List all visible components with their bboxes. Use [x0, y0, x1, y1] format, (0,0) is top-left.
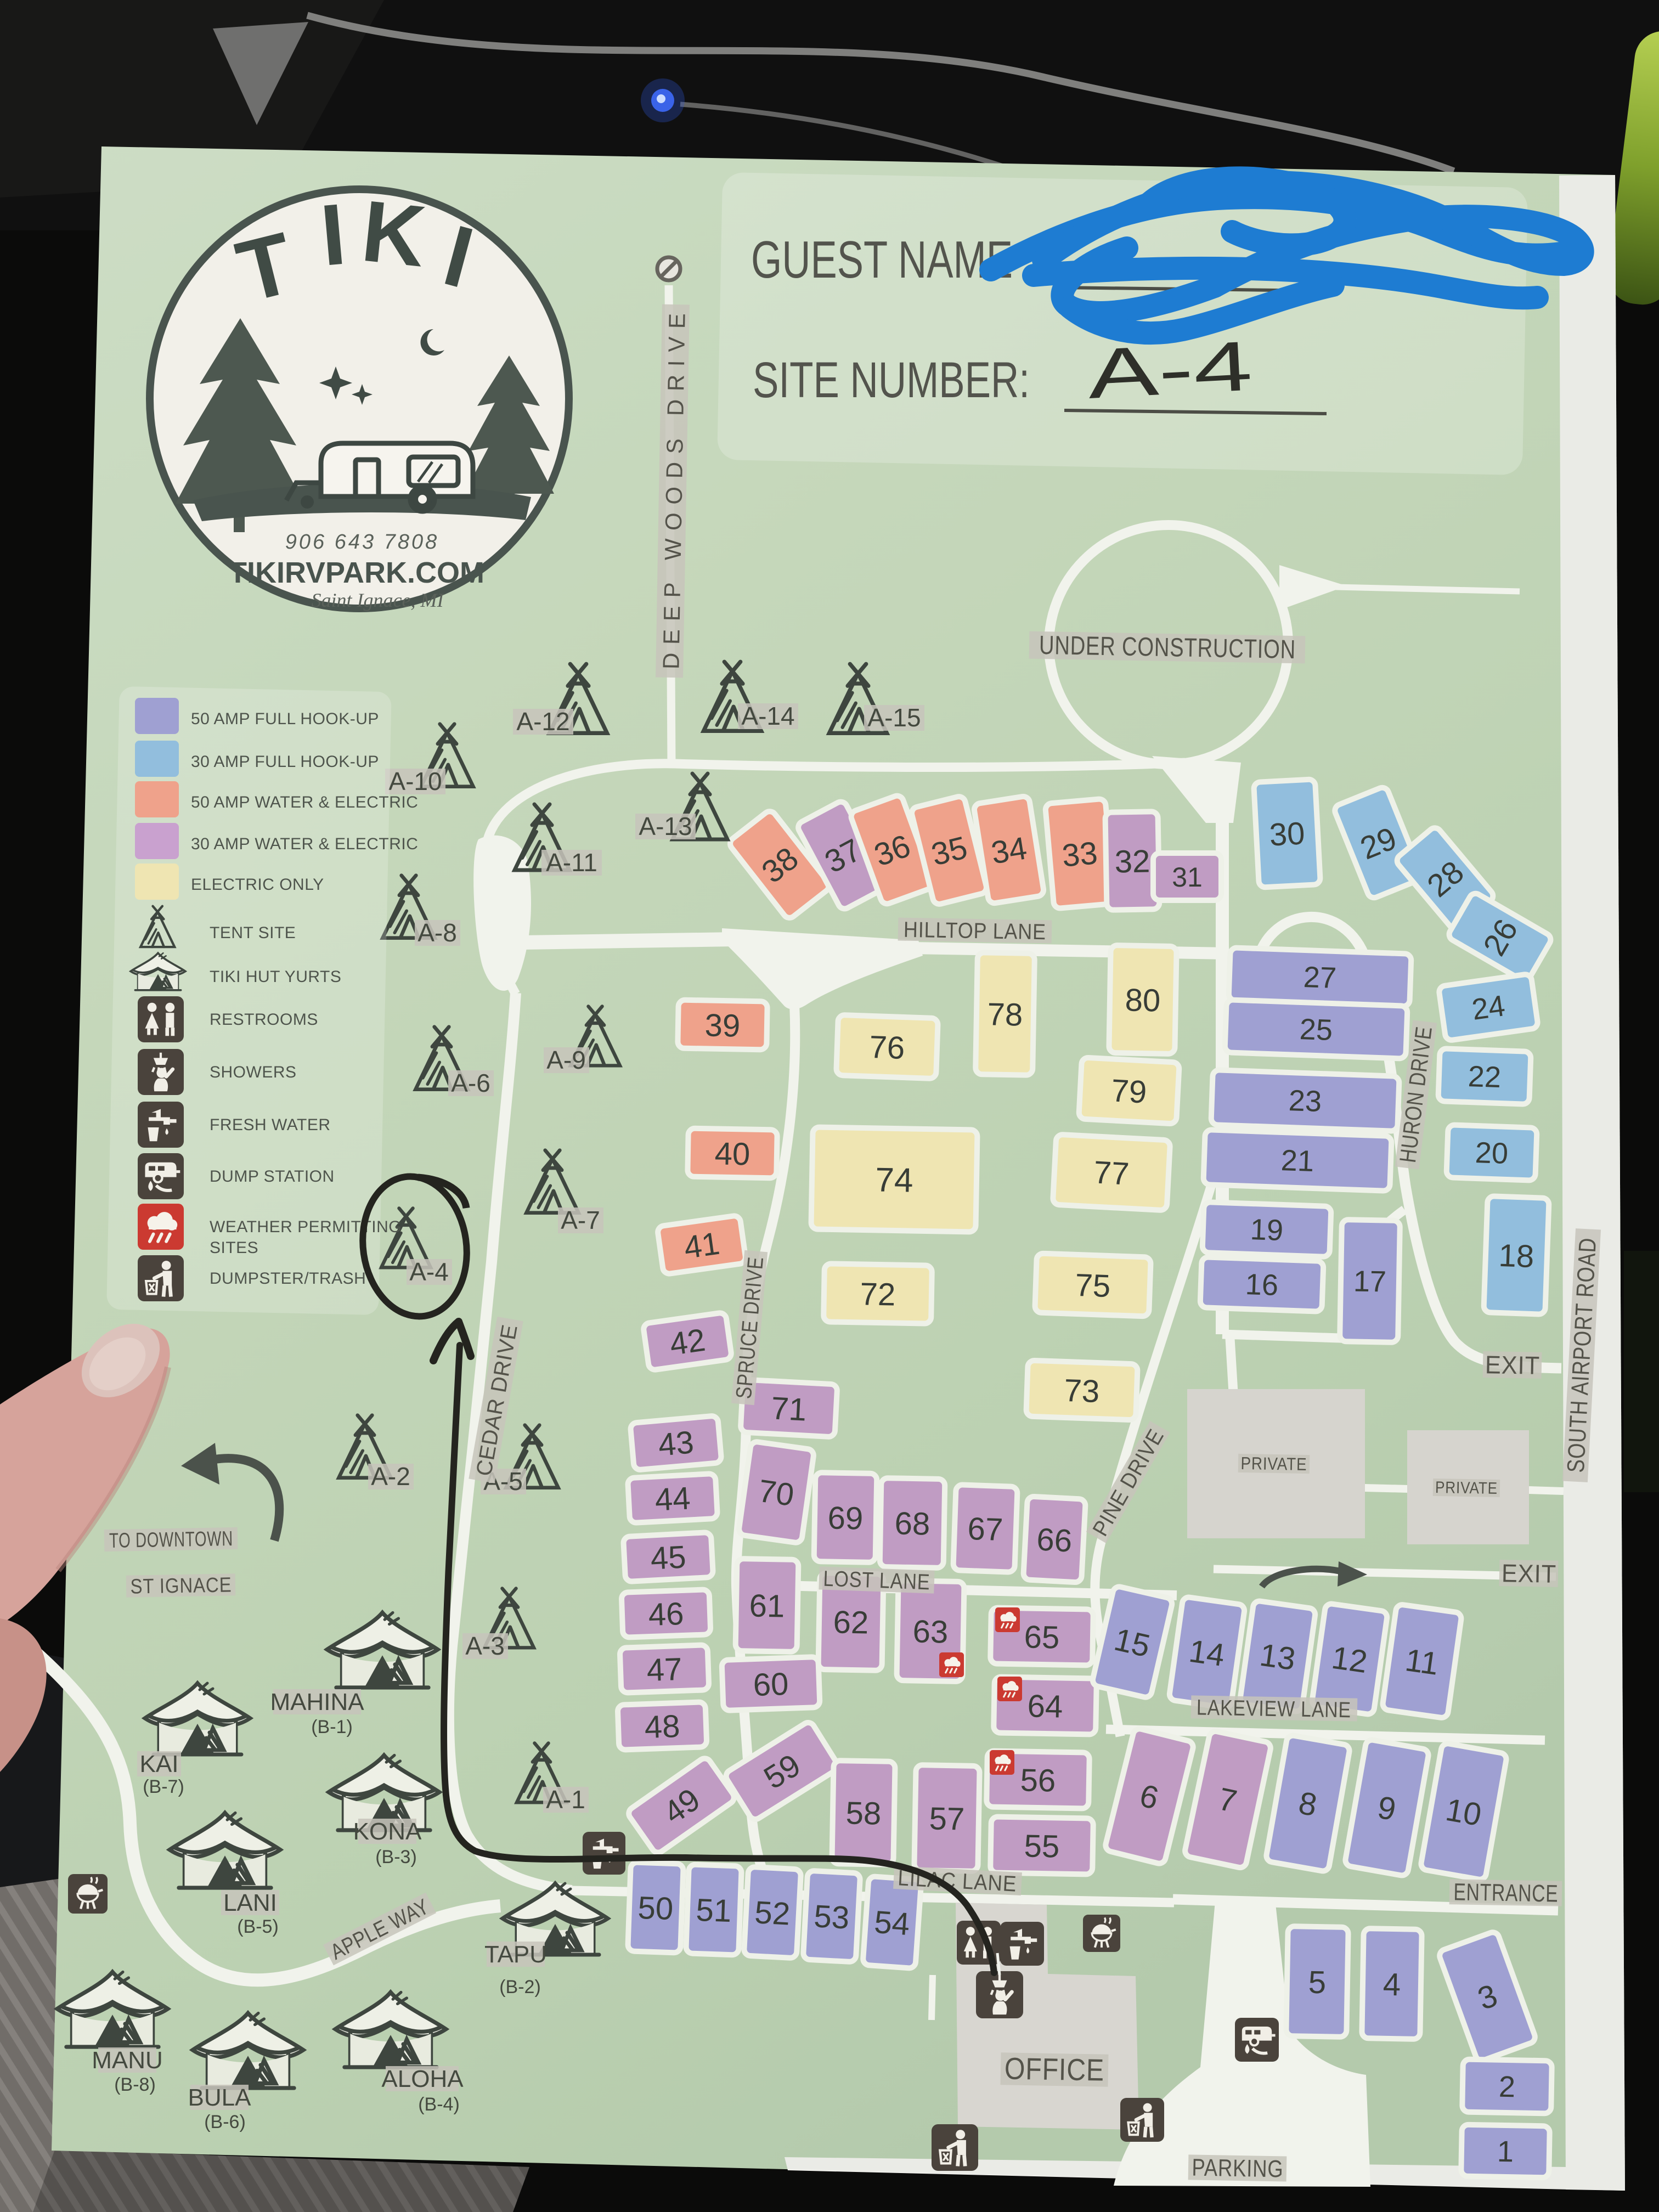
svg-text:PRIVATE: PRIVATE [1240, 1453, 1307, 1474]
svg-text:A-7: A-7 [561, 1206, 600, 1234]
svg-text:SHOWERS: SHOWERS [210, 1063, 297, 1081]
svg-text:50 AMP FULL HOOK-UP: 50 AMP FULL HOOK-UP [191, 710, 379, 728]
svg-text:53: 53 [813, 1898, 850, 1936]
svg-text:73: 73 [1064, 1373, 1101, 1409]
svg-text:71: 71 [770, 1390, 808, 1427]
svg-text:43: 43 [657, 1424, 695, 1463]
svg-text:75: 75 [1075, 1267, 1111, 1304]
svg-text:20: 20 [1475, 1136, 1509, 1170]
svg-text:DUMP STATION: DUMP STATION [210, 1167, 335, 1186]
svg-text:16: 16 [1245, 1268, 1279, 1302]
svg-text:33: 33 [1060, 835, 1099, 873]
svg-text:MAHINA: MAHINA [270, 1689, 364, 1716]
svg-text:RESTROOMS: RESTROOMS [210, 1011, 318, 1029]
svg-text:57: 57 [929, 1801, 965, 1837]
svg-text:42: 42 [668, 1322, 708, 1362]
svg-text:A-6: A-6 [451, 1069, 490, 1097]
svg-text:LAKEVIEW LANE: LAKEVIEW LANE [1197, 1696, 1352, 1723]
svg-text:63: 63 [912, 1613, 949, 1650]
svg-text:48: 48 [644, 1708, 681, 1745]
svg-text:10: 10 [1443, 1792, 1484, 1833]
svg-text:18: 18 [1498, 1238, 1535, 1274]
svg-text:56: 56 [1020, 1762, 1056, 1798]
svg-text:UNDER CONSTRUCTION: UNDER CONSTRUCTION [1039, 631, 1296, 664]
svg-text:58: 58 [845, 1795, 882, 1831]
svg-text:KAI: KAI [140, 1751, 179, 1778]
svg-text:34: 34 [989, 830, 1029, 871]
svg-text:13: 13 [1257, 1637, 1297, 1677]
svg-text:EXIT: EXIT [1502, 1559, 1557, 1588]
svg-text:77: 77 [1093, 1154, 1130, 1192]
svg-text:(B-6): (B-6) [204, 2112, 246, 2132]
svg-text:64: 64 [1027, 1688, 1063, 1724]
svg-text:DUMPSTER/TRASH: DUMPSTER/TRASH [210, 1269, 366, 1288]
svg-text:30 AMP FULL HOOK-UP: 30 AMP FULL HOOK-UP [191, 753, 379, 771]
svg-text:A-1: A-1 [546, 1785, 585, 1814]
svg-text:62: 62 [833, 1604, 869, 1640]
svg-text:TENT SITE: TENT SITE [210, 924, 296, 942]
svg-text:FRESH WATER: FRESH WATER [210, 1116, 331, 1134]
svg-text:32: 32 [1114, 843, 1150, 879]
svg-text:A-2: A-2 [371, 1462, 410, 1491]
svg-text:A-15: A-15 [867, 703, 921, 732]
svg-text:1: 1 [1497, 2135, 1514, 2169]
svg-text:68: 68 [894, 1505, 930, 1542]
svg-text:OFFICE: OFFICE [1004, 2051, 1104, 2087]
svg-text:A-11: A-11 [546, 848, 597, 877]
svg-text:(B-7): (B-7) [143, 1776, 184, 1797]
svg-text:4: 4 [1383, 1967, 1401, 2003]
svg-text:61: 61 [749, 1588, 785, 1624]
svg-text:TAPU: TAPU [484, 1941, 547, 1968]
svg-text:46: 46 [648, 1596, 685, 1633]
svg-text:14: 14 [1187, 1633, 1227, 1673]
svg-text:17: 17 [1353, 1265, 1386, 1298]
svg-text:ALOHA: ALOHA [381, 2066, 464, 2092]
svg-text:21: 21 [1280, 1144, 1314, 1178]
svg-text:(B-1): (B-1) [311, 1717, 353, 1737]
svg-text:19: 19 [1250, 1213, 1284, 1247]
svg-text:WEATHER PERMITTING: WEATHER PERMITTING [210, 1218, 402, 1236]
svg-text:12: 12 [1329, 1640, 1369, 1680]
svg-text:(B-3): (B-3) [375, 1847, 417, 1867]
svg-text:66: 66 [1036, 1521, 1073, 1559]
svg-text:A-3: A-3 [465, 1632, 505, 1660]
svg-text:74: 74 [875, 1161, 913, 1199]
svg-text:A-8: A-8 [417, 918, 457, 947]
svg-text:A-9: A-9 [546, 1046, 586, 1074]
svg-text:Saint Ignace, MI: Saint Ignace, MI [312, 589, 445, 611]
svg-text:70: 70 [756, 1473, 796, 1513]
svg-text:HILLTOP LANE: HILLTOP LANE [904, 918, 1047, 945]
svg-text:78: 78 [987, 996, 1023, 1032]
svg-text:39: 39 [704, 1007, 741, 1043]
svg-text:MANU: MANU [92, 2047, 163, 2074]
svg-text:54: 54 [873, 1904, 911, 1942]
svg-text:41: 41 [682, 1226, 722, 1266]
svg-text:(B-2): (B-2) [499, 1977, 541, 1997]
svg-text:GUEST NAME: GUEST NAME [751, 230, 1013, 289]
svg-text:A-4: A-4 [409, 1257, 449, 1286]
svg-text:24: 24 [1470, 989, 1507, 1026]
svg-text:TIKIRVPARK.COM: TIKIRVPARK.COM [229, 556, 484, 589]
svg-text:LOST LANE: LOST LANE [823, 1567, 930, 1595]
svg-text:SITE NUMBER:: SITE NUMBER: [753, 352, 1030, 408]
svg-text:47: 47 [646, 1651, 683, 1688]
svg-text:60: 60 [753, 1666, 789, 1703]
svg-text:11: 11 [1403, 1642, 1441, 1682]
svg-text:K: K [358, 183, 430, 285]
svg-text:LANI: LANI [223, 1889, 277, 1916]
svg-text:(B-8): (B-8) [114, 2074, 156, 2095]
svg-text:72: 72 [860, 1276, 896, 1312]
svg-text:A-12: A-12 [516, 707, 569, 736]
svg-text:23: 23 [1288, 1084, 1322, 1118]
svg-text:SITES: SITES [210, 1239, 258, 1257]
svg-text:EXIT: EXIT [1485, 1350, 1541, 1380]
svg-text:PARKING: PARKING [1192, 2154, 1284, 2183]
svg-text:76: 76 [869, 1029, 906, 1066]
svg-text:69: 69 [827, 1500, 864, 1536]
svg-text:ENTRANCE: ENTRANCE [1453, 1878, 1559, 1907]
svg-text:PRIVATE: PRIVATE [1435, 1479, 1498, 1498]
svg-text:A-13: A-13 [639, 812, 692, 840]
svg-text:(B-4): (B-4) [418, 2094, 460, 2115]
svg-text:67: 67 [967, 1511, 1004, 1548]
svg-text:31: 31 [1172, 862, 1203, 893]
svg-text:55: 55 [1024, 1828, 1060, 1864]
svg-text:2: 2 [1498, 2070, 1515, 2104]
svg-text:TO DOWNTOWN: TO DOWNTOWN [109, 1527, 234, 1553]
svg-text:50: 50 [637, 1890, 674, 1927]
svg-text:51: 51 [696, 1892, 732, 1929]
svg-text:50 AMP WATER & ELECTRIC: 50 AMP WATER & ELECTRIC [191, 793, 418, 811]
svg-text:45: 45 [650, 1539, 687, 1576]
svg-text:(B-5): (B-5) [237, 1916, 279, 1937]
svg-text:30: 30 [1268, 815, 1306, 853]
svg-text:27: 27 [1303, 961, 1337, 995]
svg-text:79: 79 [1110, 1073, 1148, 1110]
svg-text:65: 65 [1024, 1619, 1060, 1655]
svg-text:40: 40 [714, 1136, 751, 1172]
svg-text:906 643 7808: 906 643 7808 [285, 531, 439, 554]
svg-text:30 AMP WATER & ELECTRIC: 30 AMP WATER & ELECTRIC [191, 835, 418, 853]
svg-text:A-14: A-14 [741, 702, 794, 730]
svg-text:52: 52 [754, 1894, 791, 1932]
svg-text:KONA: KONA [353, 1818, 422, 1845]
svg-text:BULA: BULA [188, 2084, 252, 2111]
svg-text:5: 5 [1308, 1965, 1326, 2001]
svg-text:44: 44 [654, 1480, 691, 1517]
svg-text:ST IGNACE: ST IGNACE [130, 1573, 232, 1598]
svg-text:TIKI HUT YURTS: TIKI HUT YURTS [210, 968, 341, 986]
svg-text:80: 80 [1125, 982, 1161, 1018]
svg-text:25: 25 [1299, 1013, 1333, 1047]
svg-text:ELECTRIC ONLY: ELECTRIC ONLY [191, 876, 324, 894]
svg-text:22: 22 [1468, 1060, 1502, 1094]
svg-text:A-10: A-10 [388, 767, 442, 795]
